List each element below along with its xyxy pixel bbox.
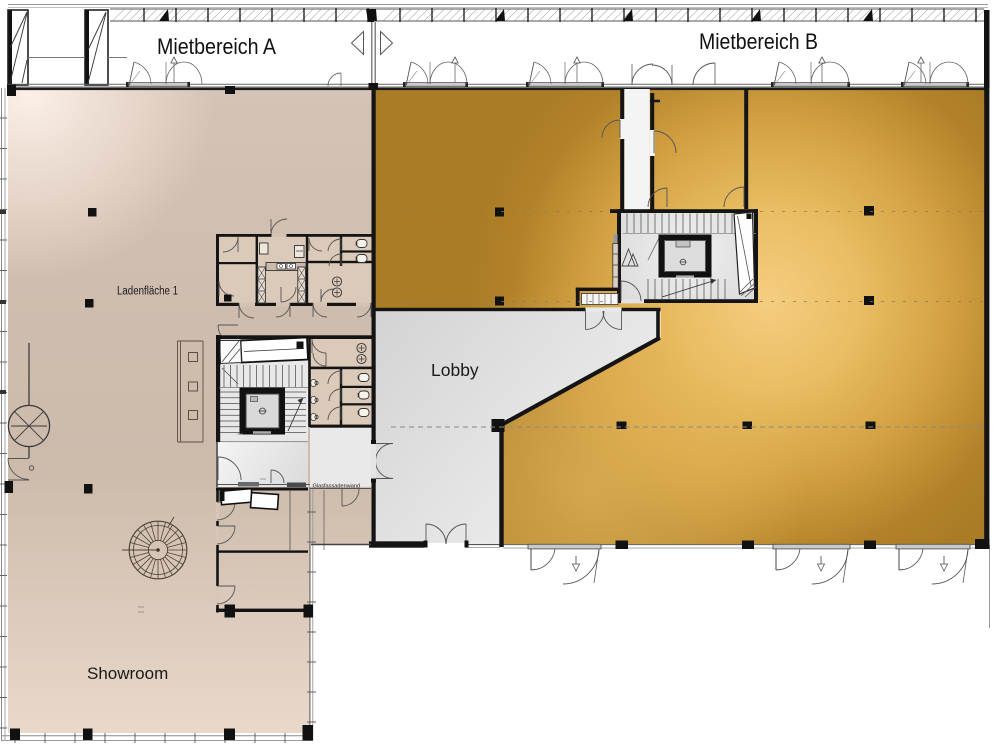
svg-text:Showroom: Showroom [87, 664, 168, 683]
svg-text:Mietbereich A: Mietbereich A [157, 34, 276, 59]
svg-text:Lobby: Lobby [431, 360, 479, 380]
svg-text:Ladenfläche 1: Ladenfläche 1 [117, 286, 178, 298]
svg-text:Mietbereich B: Mietbereich B [699, 29, 818, 54]
